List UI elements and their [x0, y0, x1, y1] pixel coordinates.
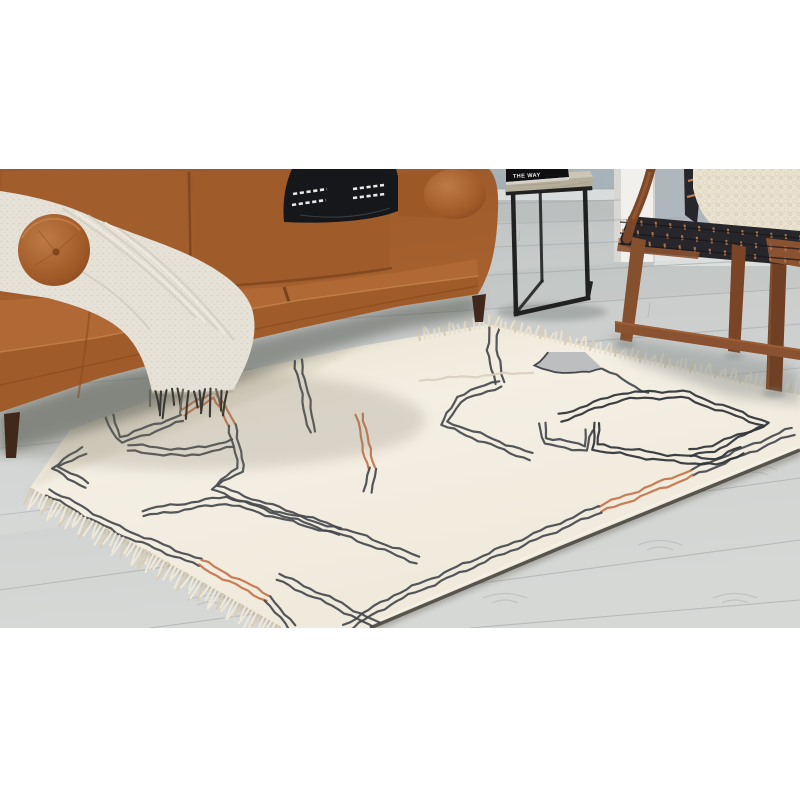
black-accent-pillow: [283, 169, 400, 223]
sofa-bolster-left: [18, 214, 90, 286]
fringe-tassel: [600, 343, 601, 352]
fringe-tassel: [273, 628, 282, 642]
fringe-tassel: [424, 327, 425, 339]
seat-weave-gap: [670, 223, 671, 228]
fringe-tassel: [530, 327, 531, 336]
seat-weave-gap: [682, 235, 683, 240]
throw-tassel: [210, 389, 211, 417]
fringe-tassel: [585, 337, 586, 349]
fringe-tassel: [439, 328, 440, 336]
seat-weave-gap: [785, 246, 786, 251]
sofa-bolster-right: [424, 169, 486, 219]
fringe-tassel: [545, 330, 546, 339]
product-photo-canvas: THE WAY: [0, 0, 800, 800]
seat-weave-gap: [770, 256, 771, 261]
lifestyle-photo: THE WAY: [0, 0, 800, 800]
fringe-tassel: [465, 322, 466, 332]
seat-weave-gap: [710, 249, 711, 254]
fringe-tassel: [449, 322, 450, 334]
seat-weave-gap: [649, 242, 650, 247]
seat-weave-gap: [619, 238, 620, 243]
fringe-tassel: [505, 322, 506, 330]
seat-weave-gap: [656, 222, 657, 227]
throw-tassel: [160, 391, 161, 415]
seat-weave-gap: [641, 220, 642, 225]
fringe-tassel: [490, 314, 491, 326]
